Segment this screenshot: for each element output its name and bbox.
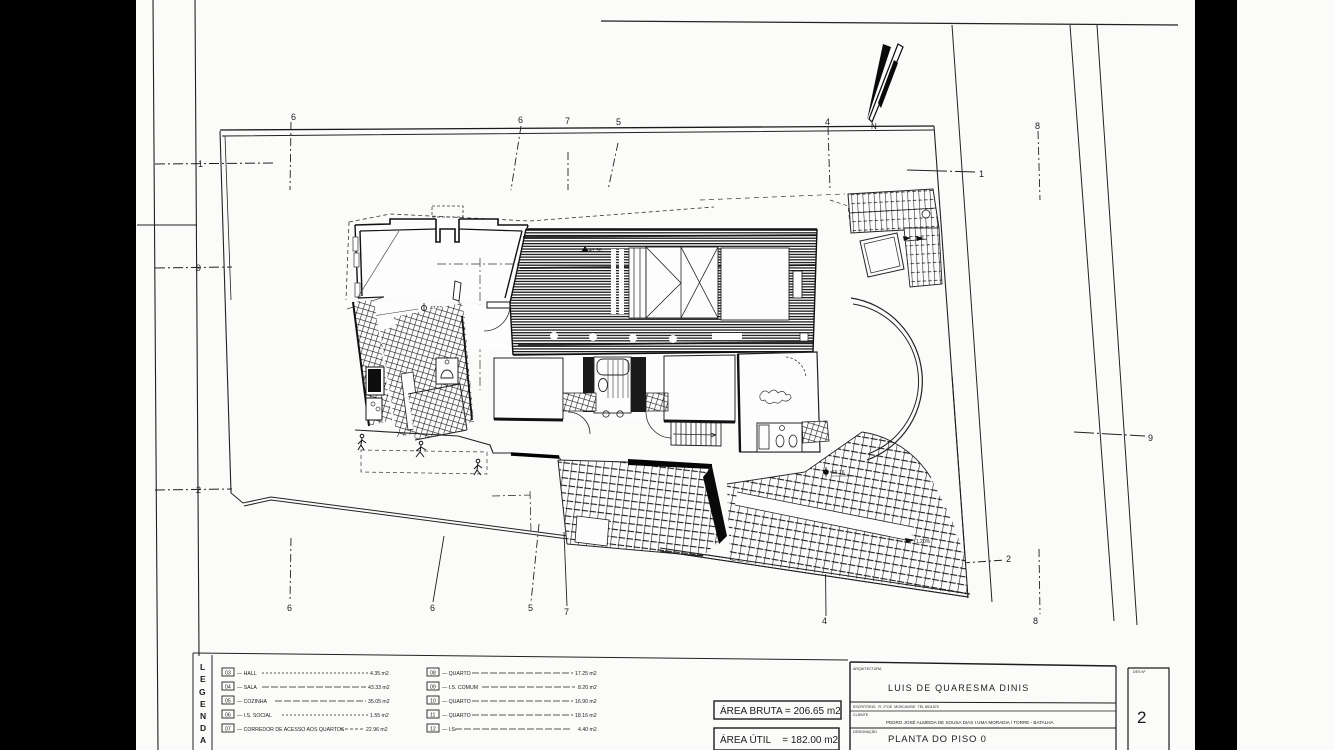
svg-text:05: 05 xyxy=(225,699,231,705)
svg-text:— QUARTO: — QUARTO xyxy=(442,699,471,705)
svg-text:— I.S.: — I.S. xyxy=(442,727,456,733)
svg-text:DES Nº: DES Nº xyxy=(1133,670,1146,674)
svg-text:03: 03 xyxy=(225,671,231,677)
svg-text:5: 5 xyxy=(528,603,533,613)
svg-text:9: 9 xyxy=(1148,433,1153,443)
svg-text:2: 2 xyxy=(1006,554,1011,564)
svg-text:G: G xyxy=(199,687,206,697)
svg-text:ÁREA BRUTA = 206.65 m2: ÁREA BRUTA = 206.65 m2 xyxy=(720,704,841,717)
svg-text:E: E xyxy=(200,699,206,709)
svg-text:6: 6 xyxy=(287,603,292,613)
svg-text:PLANTA DO PISO 0: PLANTA DO PISO 0 xyxy=(888,734,987,745)
svg-text:2: 2 xyxy=(196,485,201,495)
svg-text:D: D xyxy=(200,723,206,733)
svg-text:N: N xyxy=(200,711,206,721)
svg-text:L: L xyxy=(200,662,205,672)
svg-text:7: 7 xyxy=(564,607,569,617)
svg-text:ÁREA ÚTIL = 182.00 m2: ÁREA ÚTIL = 182.00 m2 xyxy=(720,733,839,746)
svg-text:DESIGNAÇÃO: DESIGNAÇÃO xyxy=(853,729,877,734)
svg-text:16.90 m2: 16.90 m2 xyxy=(575,699,597,705)
svg-text:6: 6 xyxy=(430,603,435,613)
svg-text:8.20 m2: 8.20 m2 xyxy=(578,685,597,691)
svg-text:06: 06 xyxy=(225,713,231,719)
svg-text:43.33 m2: 43.33 m2 xyxy=(368,685,390,691)
svg-text:5: 5 xyxy=(616,117,621,127)
svg-text:A: A xyxy=(200,735,206,745)
svg-text:— QUARTO: — QUARTO xyxy=(442,671,471,677)
svg-text:10: 10 xyxy=(430,699,436,705)
svg-text:ARQUITECTURA: ARQUITECTURA xyxy=(853,667,882,671)
svg-text:41.30: 41.30 xyxy=(589,248,602,254)
svg-text:1.20%: 1.20% xyxy=(916,539,931,545)
svg-text:— CORREDOR DE ACESSO AOS QUART: — CORREDOR DE ACESSO AOS QUARTOS xyxy=(237,727,345,733)
svg-text:04: 04 xyxy=(225,685,231,691)
svg-text:22.96 m2: 22.96 m2 xyxy=(366,727,388,733)
svg-text:CLIENTE: CLIENTE xyxy=(853,713,869,717)
svg-text:66.76: 66.76 xyxy=(832,470,845,476)
svg-text:4.35 m2: 4.35 m2 xyxy=(370,671,389,677)
svg-text:6: 6 xyxy=(518,115,523,125)
svg-text:1.55 m2: 1.55 m2 xyxy=(370,713,389,719)
svg-text:— COZINHA: — COZINHA xyxy=(237,699,268,705)
svg-text:4: 4 xyxy=(825,117,830,127)
svg-text:8: 8 xyxy=(1035,121,1040,131)
svg-text:E: E xyxy=(200,674,206,684)
svg-text:9: 9 xyxy=(196,263,201,273)
svg-text:2: 2 xyxy=(1137,708,1146,727)
svg-text:— I.S. COMUM: — I.S. COMUM xyxy=(442,685,478,691)
svg-text:11: 11 xyxy=(430,713,435,719)
svg-text:— QUARTO: — QUARTO xyxy=(442,713,471,719)
svg-text:7: 7 xyxy=(565,116,570,126)
svg-text:PEDRO JOSÉ ALMEIDA DE SOUSA DI: PEDRO JOSÉ ALMEIDA DE SOUSA DIAS I UMA M… xyxy=(886,719,1055,725)
svg-text:— SALA: — SALA xyxy=(237,685,257,691)
svg-text:18.16 m2: 18.16 m2 xyxy=(575,713,597,719)
svg-text:— HALL: — HALL xyxy=(237,671,257,677)
svg-text:— I.S. SOCIAL: — I.S. SOCIAL xyxy=(237,713,272,719)
svg-text:4.40 m2: 4.40 m2 xyxy=(578,727,597,733)
svg-text:6: 6 xyxy=(291,112,296,122)
svg-text:12: 12 xyxy=(430,727,436,733)
svg-text:35.05 m2: 35.05 m2 xyxy=(368,699,390,705)
svg-text:8: 8 xyxy=(1033,616,1038,626)
svg-text:17.25 m2: 17.25 m2 xyxy=(575,671,597,677)
svg-text:N: N xyxy=(871,122,877,131)
svg-text:4: 4 xyxy=(822,616,827,626)
svg-text:1: 1 xyxy=(979,169,984,179)
svg-text:ESCRITÓRIO R. 1º DE MOSCAVI: ESCRITÓRIO R. 1º DE MOSCAVIDE TEL 851187… xyxy=(853,704,939,709)
svg-text:LUIS DE QUARESMA DINIS: LUIS DE QUARESMA DINIS xyxy=(888,683,1029,693)
svg-text:09: 09 xyxy=(430,685,436,691)
svg-text:08: 08 xyxy=(430,671,436,677)
svg-text:1: 1 xyxy=(198,159,203,169)
svg-text:07: 07 xyxy=(225,727,231,733)
